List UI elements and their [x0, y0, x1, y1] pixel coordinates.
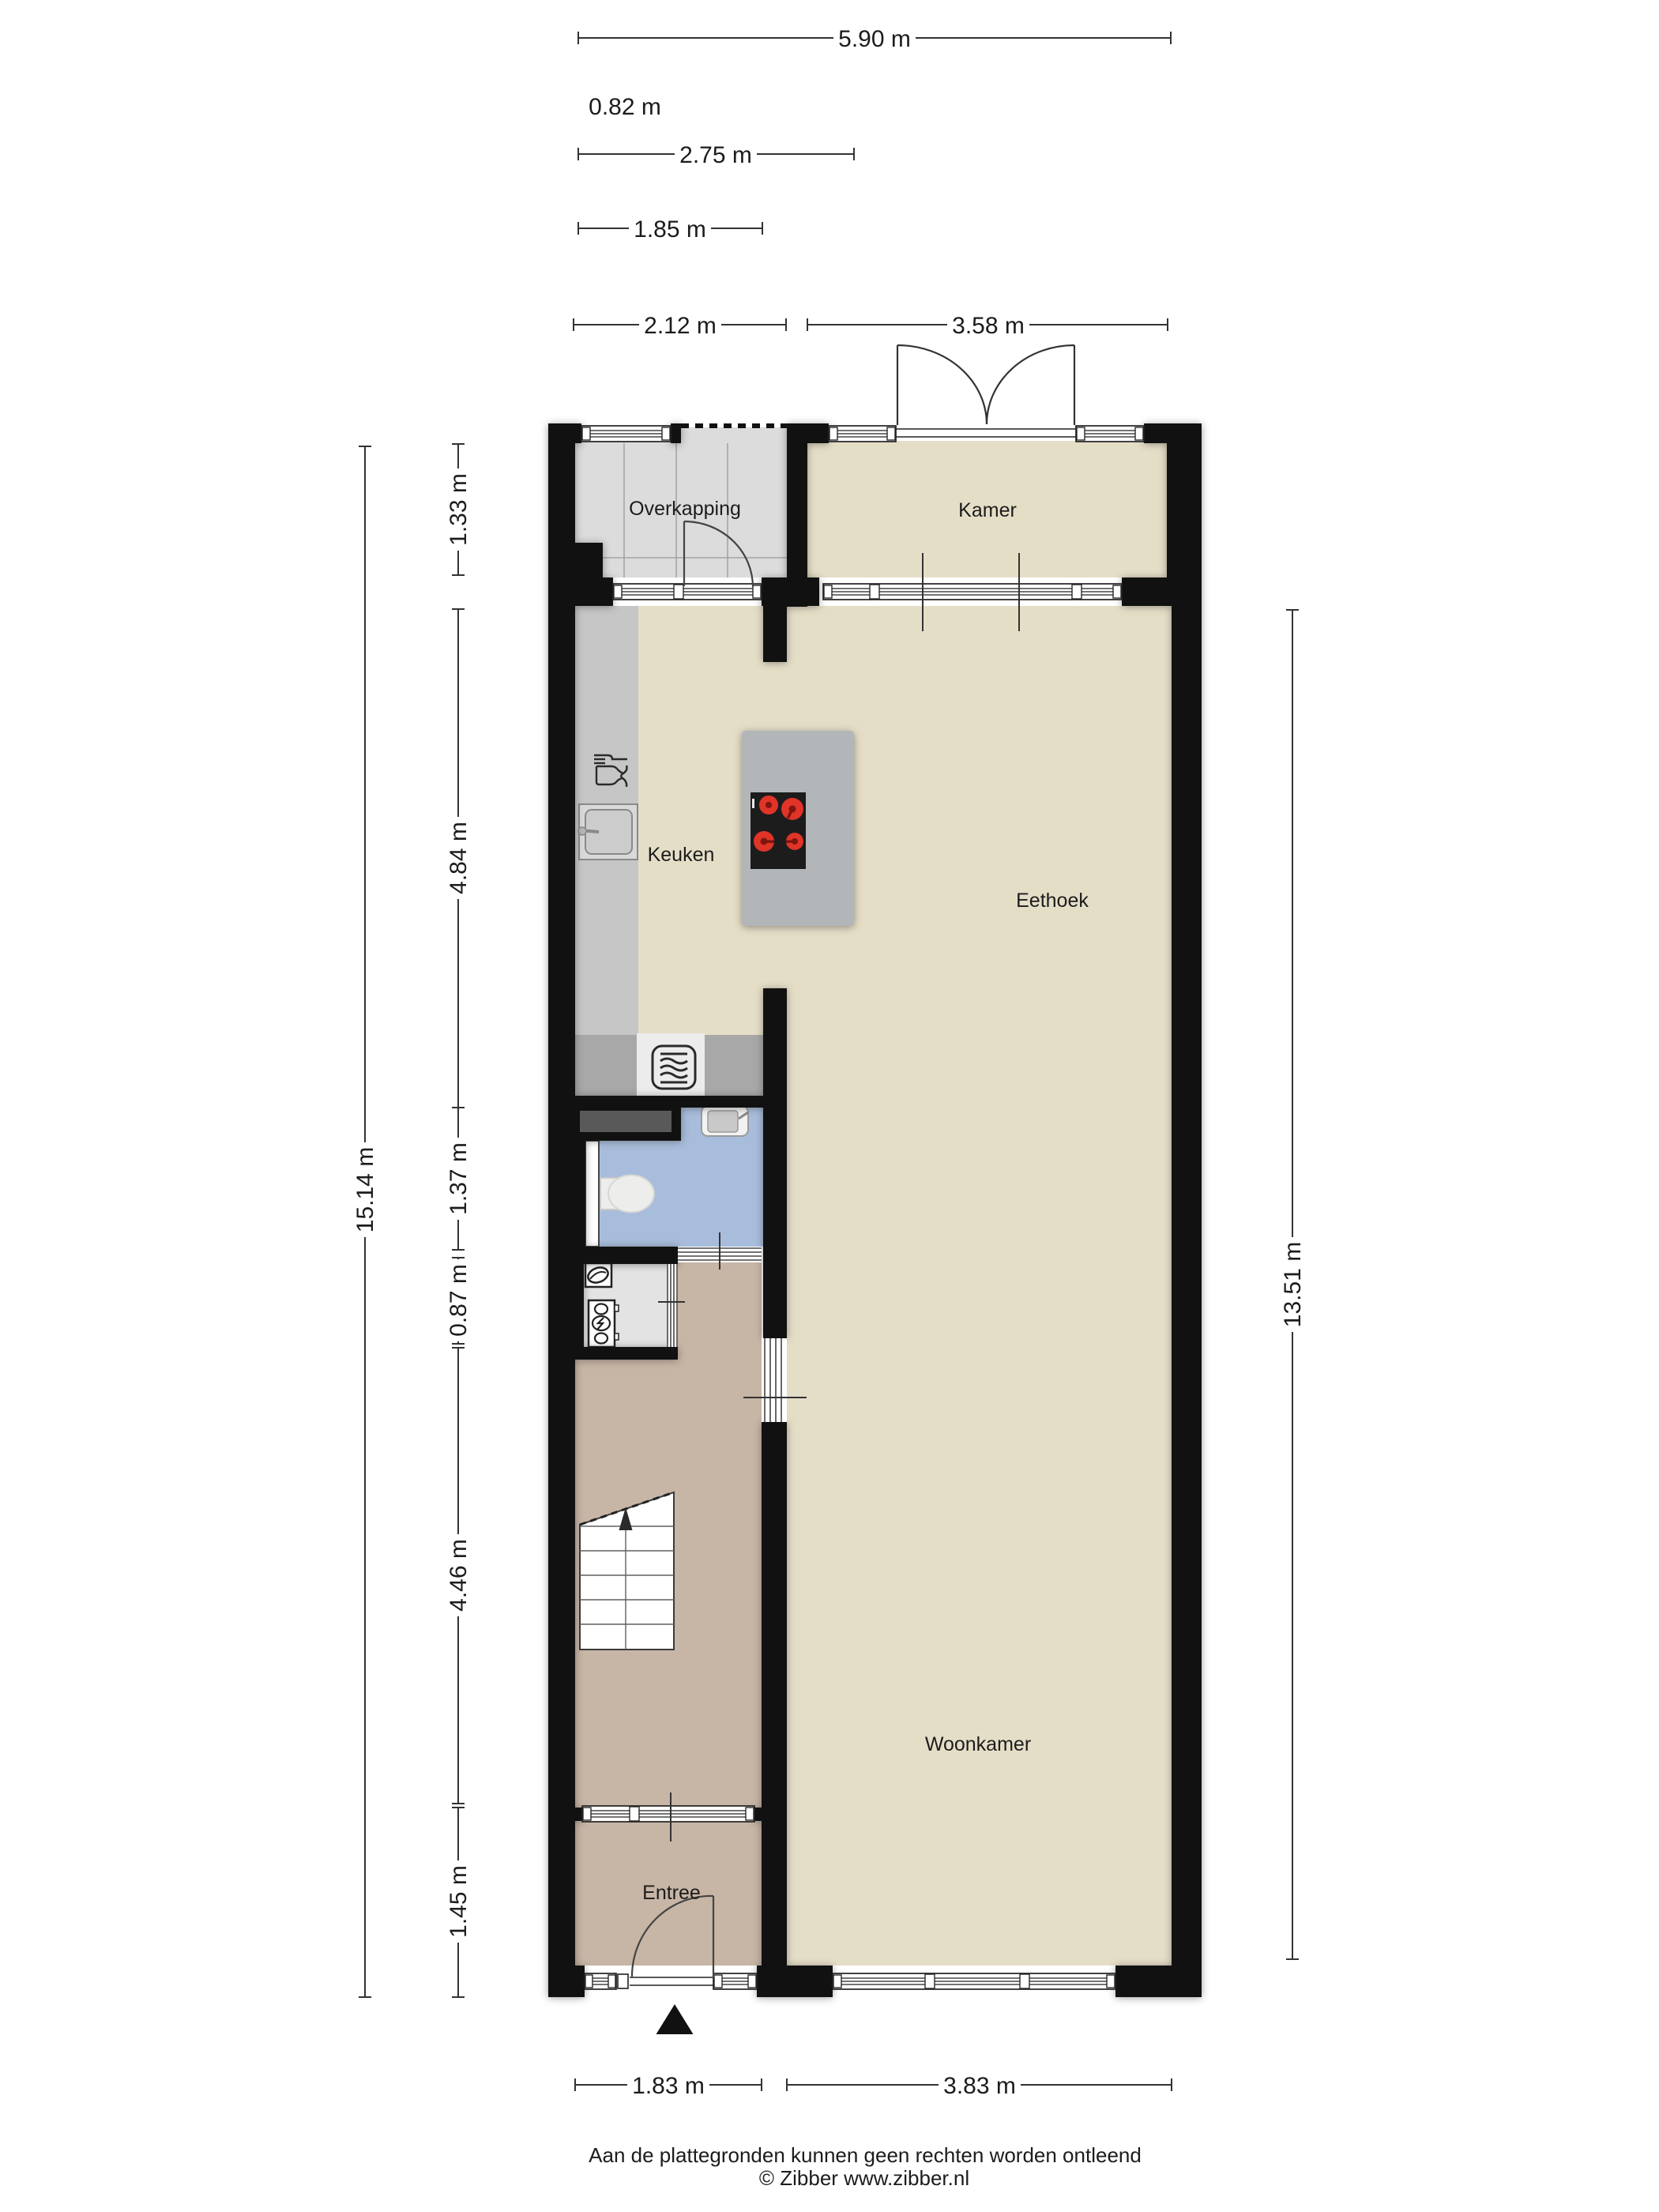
svg-text:3.58 m: 3.58 m	[952, 313, 1025, 339]
svg-text:Entree: Entree	[642, 1882, 701, 1904]
svg-text:© Zibber www.zibber.nl: © Zibber www.zibber.nl	[759, 2166, 969, 2190]
svg-text:Keuken: Keuken	[648, 844, 715, 866]
svg-text:Kamer: Kamer	[958, 499, 1017, 521]
svg-text:13.51 m: 13.51 m	[1280, 1242, 1306, 1327]
svg-text:1.45 m: 1.45 m	[446, 1865, 472, 1938]
svg-text:1.85 m: 1.85 m	[634, 216, 706, 243]
svg-text:0.82 m: 0.82 m	[589, 94, 661, 120]
svg-text:Woonkamer: Woonkamer	[925, 1733, 1031, 1755]
svg-text:15.14 m: 15.14 m	[352, 1147, 378, 1232]
svg-text:2.12 m: 2.12 m	[644, 313, 717, 339]
svg-text:3.83 m: 3.83 m	[943, 2073, 1016, 2099]
svg-text:1.83 m: 1.83 m	[632, 2073, 705, 2099]
svg-text:1.33 m: 1.33 m	[446, 473, 472, 546]
svg-text:2.75 m: 2.75 m	[679, 142, 752, 168]
svg-text:Aan de plattegronden kunnen ge: Aan de plattegronden kunnen geen rechten…	[589, 2143, 1142, 2167]
svg-text:Overkapping: Overkapping	[629, 498, 741, 520]
svg-text:1.37 m: 1.37 m	[446, 1142, 472, 1215]
svg-text:4.84 m: 4.84 m	[446, 822, 472, 894]
svg-text:Eethoek: Eethoek	[1016, 890, 1089, 912]
svg-text:0.87 m: 0.87 m	[446, 1264, 472, 1337]
svg-text:5.90 m: 5.90 m	[838, 26, 911, 52]
svg-text:4.46 m: 4.46 m	[446, 1539, 472, 1612]
